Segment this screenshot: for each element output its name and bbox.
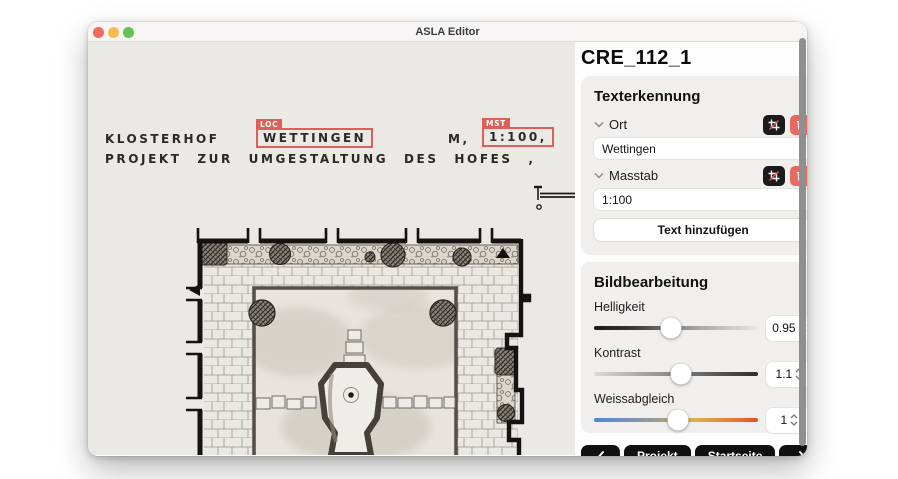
field-row-ort: Ort — [594, 114, 807, 135]
plan-drawing — [88, 42, 575, 455]
stepper-icon[interactable] — [790, 413, 798, 427]
doc-word-m: M, — [448, 132, 470, 146]
chevron-down-icon[interactable] — [594, 171, 604, 180]
window-title: ASLA Editor — [415, 26, 479, 38]
doc-line2: PROJEKT ZUR UMGESTALTUNG DES HOFES , — [105, 152, 536, 166]
chevron-left-icon — [596, 450, 606, 457]
ocr-text-mst: 1:100, — [489, 130, 547, 144]
side-panel: CRE_112_1 Texterkennung Ort — [575, 42, 807, 455]
bottom-nav: Projekt Startseite — [581, 445, 807, 456]
chevron-right-icon — [797, 450, 807, 457]
masstab-input[interactable] — [594, 189, 807, 210]
page-title: CRE_112_1 — [581, 45, 807, 71]
zoom-icon[interactable] — [123, 27, 134, 38]
minimize-icon[interactable] — [108, 27, 119, 38]
slider-label-helligkeit: Helligkeit — [594, 300, 807, 314]
projekt-button[interactable]: Projekt — [624, 445, 691, 456]
kontrast-slider[interactable] — [594, 362, 758, 386]
slider-thumb[interactable] — [671, 364, 692, 385]
image-editing-heading: Bildbearbeitung — [594, 274, 807, 291]
helligkeit-slider[interactable] — [594, 316, 758, 340]
close-icon[interactable] — [93, 27, 104, 38]
field-label-masstab: Masstab — [609, 168, 658, 183]
scrollbar[interactable] — [799, 38, 806, 446]
image-editing-card: Bildbearbeitung Helligkeit 0.95 Kontrast — [581, 262, 807, 433]
slider-thumb[interactable] — [661, 318, 682, 339]
ocr-box-loc[interactable]: LOC WETTINGEN — [256, 128, 373, 148]
back-button[interactable] — [581, 445, 620, 456]
plan-canvas[interactable]: KLOSTERHOF LOC WETTINGEN M, MST 1:100, P… — [88, 42, 575, 455]
planting-strip-right — [495, 348, 516, 423]
doc-word-klosterhof: KLOSTERHOF — [105, 132, 219, 146]
text-recognition-heading: Texterkennung — [594, 88, 807, 105]
add-text-button[interactable]: Text hinzufügen — [594, 219, 807, 241]
slider-label-kontrast: Kontrast — [594, 346, 807, 360]
ocr-tag-loc: LOC — [256, 119, 282, 130]
forward-button[interactable] — [779, 445, 807, 456]
field-label-ort: Ort — [609, 117, 627, 132]
titlebar: ASLA Editor — [88, 22, 807, 42]
field-row-masstab: Masstab — [594, 165, 807, 186]
ort-input[interactable] — [594, 138, 807, 159]
crop-icon — [768, 170, 780, 182]
startseite-button[interactable]: Startseite — [695, 445, 776, 456]
text-recognition-card: Texterkennung Ort — [581, 76, 807, 255]
slider-label-weissabgleich: Weissabgleich — [594, 392, 807, 406]
slider-thumb[interactable] — [667, 410, 688, 431]
weissabgleich-slider[interactable] — [594, 408, 758, 432]
ocr-tag-mst: MST — [482, 118, 510, 129]
crop-button[interactable] — [763, 115, 785, 135]
app-window: ASLA Editor — [88, 22, 807, 456]
crop-button[interactable] — [763, 166, 785, 186]
window-controls — [93, 27, 134, 38]
ocr-text-loc: WETTINGEN — [263, 131, 366, 145]
planting-strip-top — [200, 242, 518, 267]
chevron-down-icon[interactable] — [594, 120, 604, 129]
crop-icon — [768, 119, 780, 131]
ocr-box-mst[interactable]: MST 1:100, — [482, 127, 554, 147]
